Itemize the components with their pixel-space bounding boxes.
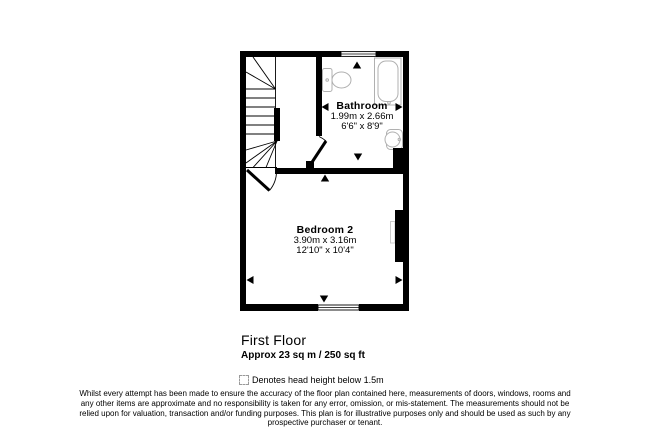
wall-top — [240, 51, 409, 57]
wall-divider — [275, 168, 409, 174]
radiator — [391, 222, 396, 244]
stairs-winder — [253, 57, 276, 89]
bedroom-door-leaf — [247, 170, 270, 191]
room-dim-imperial-bedroom-2: 12'10" x 10'4" — [296, 245, 353, 256]
stairs-winder — [253, 141, 277, 168]
toilet-icon — [323, 69, 333, 92]
dimension-arrow-down-bedroom — [320, 296, 328, 303]
floor-plan-drawing — [0, 0, 650, 437]
dimension-arrow-up-bedroom — [321, 175, 329, 182]
fixtures — [323, 58, 403, 243]
dimension-arrow-up-bathroom — [353, 62, 361, 69]
floor-area: Approx 23 sq m / 250 sq ft — [241, 350, 365, 361]
dimension-arrow-down-bathroom — [354, 154, 362, 161]
room-dim-imperial-bathroom: 6'6" x 8'9" — [341, 121, 383, 132]
disclaimer-line: any other items are approximate and no r… — [81, 399, 570, 409]
wall-bedroom-chimney-block — [395, 210, 403, 262]
bathroom-door-leaf — [310, 141, 327, 166]
dimension-arrow-left-bathroom — [322, 103, 329, 111]
disclaimer-line: Whilst every attempt has been made to en… — [79, 389, 570, 399]
floor-title: First Floor — [241, 332, 306, 348]
bathroom-door-arc — [319, 137, 326, 142]
toilet-bowl-icon — [332, 72, 351, 88]
stairs-winder — [246, 72, 276, 89]
staircase — [246, 57, 277, 168]
wall-bathroom-left — [316, 57, 322, 136]
dimension-arrow-right-bedroom — [396, 276, 403, 284]
wall-left — [240, 51, 246, 311]
disclaimer-line: prospective purchaser or tenant. — [268, 418, 383, 428]
wall-right — [403, 51, 409, 311]
floorplan-page: Bathroom 1.99m x 2.66m 6'6" x 8'9" Bedro… — [0, 0, 650, 437]
stair-newel-wall — [274, 108, 280, 141]
wall-bathroom-corner-block — [393, 148, 409, 170]
dimension-arrow-left-bedroom — [247, 276, 254, 284]
doors — [247, 137, 326, 191]
bathtub-inner — [378, 61, 398, 102]
head-height-legend-swatch — [239, 375, 249, 385]
disclaimer-line: relied upon for valuation, transaction a… — [79, 409, 570, 419]
head-height-legend-note: Denotes head height below 1.5m — [252, 375, 384, 385]
